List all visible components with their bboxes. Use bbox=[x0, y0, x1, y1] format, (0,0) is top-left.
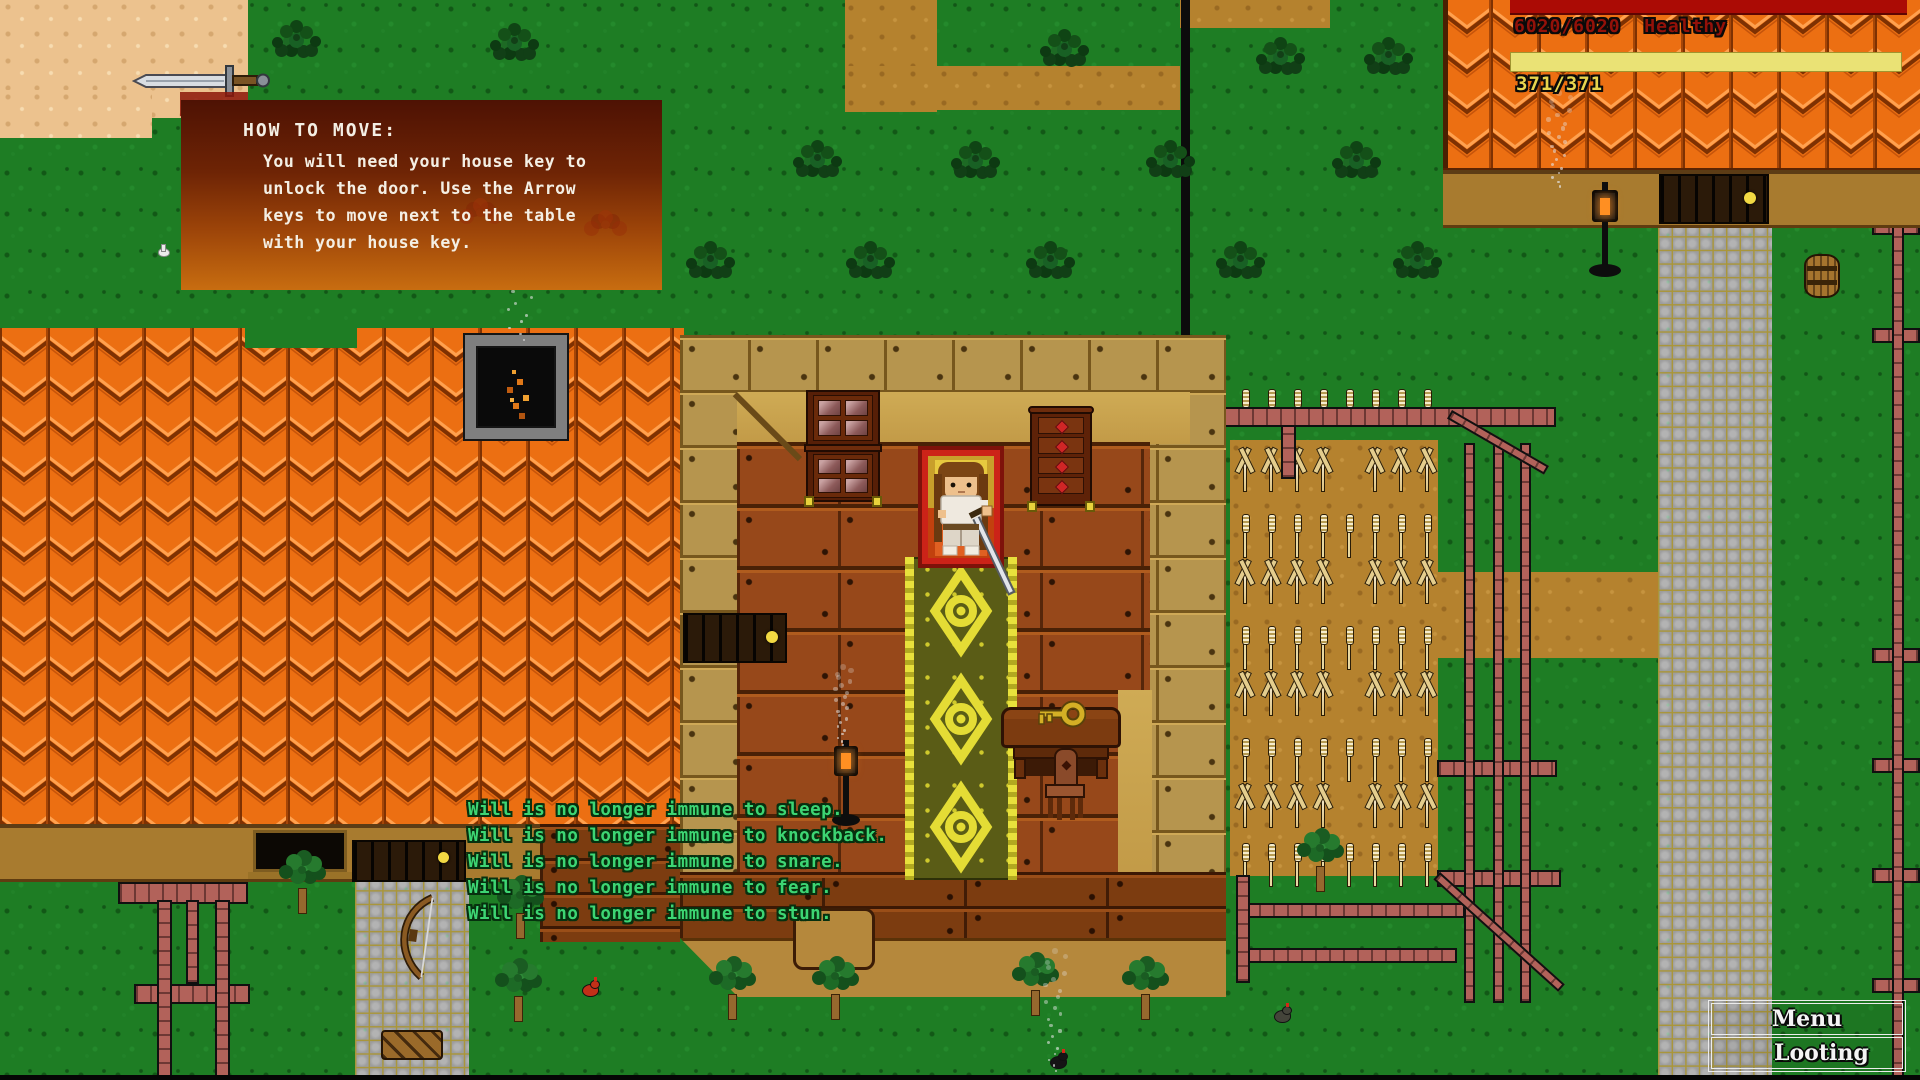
stamina-bar bbox=[1510, 52, 1902, 72]
cabinet-lower bbox=[813, 454, 873, 498]
smoke-particle bbox=[845, 717, 848, 720]
dresser bbox=[1030, 406, 1092, 506]
game-screen: HOW TO MOVE: You will need your house ke… bbox=[0, 0, 1920, 1080]
interior-back-wall bbox=[737, 392, 1190, 444]
grass-bush bbox=[867, 255, 874, 262]
left-house-door[interactable] bbox=[352, 840, 466, 882]
tutorial-title: HOW TO MOVE: bbox=[243, 120, 397, 141]
smoke-particle bbox=[523, 339, 525, 341]
fence-rail-vertical bbox=[1281, 425, 1296, 479]
wheat-stalk bbox=[1373, 628, 1377, 670]
wheat-sprout bbox=[1373, 784, 1377, 828]
tutorial-line: unlock the door. Use the Arrow bbox=[263, 179, 576, 198]
dresser-drawer bbox=[1038, 477, 1084, 494]
tutorial-line: with your house key. bbox=[263, 233, 472, 252]
smoke-particle bbox=[845, 706, 849, 710]
wheat-stalk bbox=[1425, 845, 1429, 887]
stone-path-right bbox=[1658, 224, 1772, 1080]
barrel bbox=[1804, 254, 1840, 298]
grass-bush bbox=[814, 154, 821, 161]
grass-bush bbox=[1385, 51, 1392, 58]
fence-rail-horizontal bbox=[1243, 903, 1465, 918]
health-bar bbox=[1510, 0, 1907, 15]
tutorial-box: HOW TO MOVE: You will need your house ke… bbox=[181, 100, 662, 290]
smoke-particle bbox=[525, 314, 528, 317]
smoke-particle bbox=[1052, 948, 1058, 954]
wheat-sprout bbox=[1269, 784, 1273, 828]
right-house-door-handle bbox=[1744, 192, 1756, 204]
wheat-field-soil bbox=[1230, 440, 1438, 876]
wheat-sprout bbox=[1399, 784, 1403, 828]
chair bbox=[1040, 748, 1090, 824]
wheat-stalk bbox=[1347, 845, 1351, 887]
carpet-tile bbox=[914, 773, 1008, 880]
carpet-edge-left bbox=[905, 557, 914, 880]
rabbit bbox=[158, 248, 170, 257]
tree-foliage bbox=[728, 972, 736, 980]
wheat-stalk bbox=[1295, 628, 1299, 670]
status-message: Will is no longer immune to sleep. bbox=[468, 800, 843, 820]
wheat-sprout bbox=[1399, 448, 1403, 492]
looting-button[interactable]: Looting bbox=[1711, 1037, 1903, 1069]
tree-foliage bbox=[1031, 968, 1039, 976]
cabinet-foot bbox=[804, 496, 814, 507]
stamina-text: 371/371 bbox=[1516, 73, 1603, 95]
wheat-stalk bbox=[1399, 740, 1403, 782]
chicken bbox=[1050, 1056, 1067, 1069]
wheat-stalk bbox=[1347, 628, 1351, 670]
fence-rail-vertical bbox=[215, 900, 230, 1080]
dirt-path-top-right bbox=[1180, 0, 1330, 28]
wheat-sprout bbox=[1321, 784, 1325, 828]
grass-bush bbox=[1061, 43, 1068, 50]
status-message: Will is no longer immune to stun. bbox=[468, 904, 832, 924]
chimney bbox=[465, 335, 567, 439]
chicken bbox=[1274, 1010, 1291, 1023]
wheat-stalk bbox=[1243, 628, 1247, 670]
smoke-particle bbox=[848, 668, 853, 673]
dresser-drawer bbox=[1038, 457, 1084, 474]
smoke-particle bbox=[1557, 181, 1559, 183]
screen-bottom-edge bbox=[0, 1075, 1920, 1080]
grass-bush bbox=[293, 34, 300, 41]
wheat-stalk bbox=[1243, 740, 1247, 782]
wheat-stalk bbox=[1373, 516, 1377, 558]
grass-bush bbox=[511, 37, 518, 44]
health-gap bbox=[1621, 16, 1645, 37]
smoke-particle bbox=[1563, 140, 1567, 144]
smoke-particle bbox=[1049, 1024, 1052, 1027]
sand-patch-lower bbox=[0, 90, 152, 138]
smoke-particle bbox=[508, 327, 510, 329]
carpet-tile bbox=[914, 665, 1008, 772]
wood-planks bbox=[381, 1030, 443, 1060]
grass-bush bbox=[1414, 255, 1421, 262]
health-label: Healthy bbox=[1644, 16, 1727, 37]
wheat-sprout bbox=[1243, 560, 1247, 604]
status-message: Will is no longer immune to knockback. bbox=[468, 826, 887, 846]
wheat-sprout bbox=[1243, 784, 1247, 828]
chicken bbox=[582, 984, 599, 997]
smoke-particle bbox=[1561, 126, 1565, 130]
fence-rail-vertical bbox=[1520, 443, 1531, 1003]
health-text: 6020/6020 Healthy bbox=[1514, 16, 1727, 37]
wheat-sprout bbox=[1425, 784, 1429, 828]
tree-trunk bbox=[1316, 866, 1325, 892]
health-value: 6020/6020 bbox=[1514, 16, 1621, 37]
left-house-door-handle bbox=[438, 852, 449, 863]
wheat-sprout bbox=[1373, 560, 1377, 604]
tutorial-line: You will need your house key to bbox=[263, 152, 586, 171]
wheat-stalk bbox=[1399, 628, 1403, 670]
status-message: Will is no longer immune to fear. bbox=[468, 878, 832, 898]
house-key[interactable] bbox=[1036, 698, 1086, 730]
tree-trunk bbox=[728, 994, 737, 1020]
grass-bush bbox=[1167, 154, 1174, 161]
wheat-sprout bbox=[1269, 448, 1273, 492]
smoke-particle bbox=[1550, 104, 1555, 109]
wheat-sprout bbox=[1243, 672, 1247, 716]
wheat-stalk bbox=[1347, 516, 1351, 558]
tree-trunk bbox=[1031, 990, 1040, 1016]
wheat-stalk bbox=[1295, 740, 1299, 782]
wheat-stalk bbox=[1399, 516, 1403, 558]
fence-rail-horizontal bbox=[134, 984, 250, 1004]
cabinet-foot bbox=[872, 496, 882, 507]
smoke-particle bbox=[841, 702, 845, 706]
tree-trunk bbox=[1141, 994, 1150, 1020]
wheat-sprout bbox=[1425, 672, 1429, 716]
wheat-sprout bbox=[1321, 560, 1325, 604]
smoke-particle bbox=[840, 664, 846, 670]
fence-rail-vertical bbox=[1892, 222, 1904, 1080]
smoke-particle bbox=[1062, 971, 1067, 976]
wheat-stalk bbox=[1373, 740, 1377, 782]
smoke-particle bbox=[1555, 158, 1558, 161]
wheat-sprout bbox=[1425, 448, 1429, 492]
smoke-particle bbox=[1551, 176, 1553, 178]
smoke-particle bbox=[1546, 117, 1551, 122]
smoke-particle bbox=[1568, 95, 1573, 100]
wheat-stalk bbox=[1425, 740, 1429, 782]
lamppost bbox=[1588, 182, 1622, 280]
wheat-sprout bbox=[1295, 560, 1299, 604]
apron-corner-cut bbox=[680, 938, 738, 997]
cabinet-divider bbox=[804, 444, 882, 452]
smoke-particle bbox=[511, 290, 514, 293]
wheat-stalk bbox=[1373, 845, 1377, 887]
wheat-sprout bbox=[1295, 784, 1299, 828]
smoke-particle bbox=[1550, 145, 1554, 149]
smoke-particle bbox=[839, 683, 844, 688]
wheat-stalk bbox=[1269, 628, 1273, 670]
wheat-sprout bbox=[1321, 448, 1325, 492]
wheat-stalk bbox=[1269, 845, 1273, 887]
tutorial-decoration bbox=[601, 220, 610, 229]
wheat-stalk bbox=[1321, 516, 1325, 558]
tutorial-line: keys to move next to the table bbox=[263, 206, 576, 225]
west-door-handle bbox=[766, 631, 778, 643]
wheat-sprout bbox=[1269, 560, 1273, 604]
fence-rail-horizontal bbox=[1208, 407, 1556, 427]
wheat-sprout bbox=[1295, 672, 1299, 716]
tree-foliage bbox=[1141, 972, 1149, 980]
tree-foliage bbox=[514, 974, 522, 982]
wheat-sprout bbox=[1399, 672, 1403, 716]
smoke-particle bbox=[841, 740, 843, 742]
tree-trunk bbox=[514, 996, 523, 1022]
grass-bush bbox=[1353, 155, 1360, 162]
wheat-sprout bbox=[1399, 560, 1403, 604]
wheat-sprout bbox=[1243, 448, 1247, 492]
dresser-foot bbox=[1085, 501, 1095, 512]
post-line bbox=[1181, 0, 1190, 340]
wheat-stalk bbox=[1425, 516, 1429, 558]
dresser-foot bbox=[1027, 501, 1037, 512]
grass-bush bbox=[1237, 255, 1244, 262]
wheat-stalk bbox=[1269, 740, 1273, 782]
wheat-stalk bbox=[1347, 740, 1351, 782]
interior-right-strip bbox=[1118, 690, 1152, 880]
grass-bush bbox=[1047, 255, 1054, 262]
wheat-sprout bbox=[1373, 448, 1377, 492]
smoke-particle bbox=[519, 333, 521, 335]
fence-rail-vertical bbox=[1236, 875, 1250, 983]
smoke-particle bbox=[1563, 154, 1566, 157]
cabinet-upper bbox=[813, 395, 873, 441]
tree-foliage bbox=[831, 972, 839, 980]
grass-bush bbox=[707, 255, 714, 262]
dirt-path-horizontal bbox=[845, 66, 1180, 110]
status-message: Will is no longer immune to snare. bbox=[468, 852, 843, 872]
wheat-stalk bbox=[1399, 845, 1403, 887]
smoke-particle bbox=[1567, 108, 1572, 113]
grass-bush bbox=[1277, 51, 1284, 58]
fence-rail-vertical bbox=[186, 900, 199, 984]
action-buttons: Menu Looting bbox=[1708, 1000, 1906, 1072]
smoke-particle bbox=[1051, 977, 1056, 982]
wheat-sprout bbox=[1269, 672, 1273, 716]
smoke-particle bbox=[1559, 185, 1561, 187]
wheat-stalk bbox=[1243, 516, 1247, 558]
left-house-roof bbox=[0, 328, 684, 828]
wheat-stalk bbox=[1295, 516, 1299, 558]
fence-rail-horizontal bbox=[1243, 948, 1457, 963]
center-house-apron bbox=[680, 938, 1226, 997]
dresser-drawer bbox=[1038, 417, 1084, 434]
fence-rail-vertical bbox=[1464, 443, 1475, 1003]
smoke-particle bbox=[1551, 163, 1554, 166]
cabinet bbox=[806, 390, 880, 502]
smoke-particle bbox=[1059, 1012, 1063, 1016]
wheat-stalk bbox=[1321, 628, 1325, 670]
tree-trunk bbox=[831, 994, 840, 1020]
fence-rail-vertical bbox=[1493, 443, 1504, 1003]
smoke-particle bbox=[1553, 149, 1556, 152]
fence-rail-vertical bbox=[157, 900, 172, 1080]
menu-button[interactable]: Menu bbox=[1711, 1003, 1903, 1035]
wheat-sprout bbox=[1425, 560, 1429, 604]
dresser-drawer bbox=[1038, 437, 1084, 454]
tree-foliage bbox=[298, 866, 306, 874]
player-character[interactable] bbox=[918, 444, 1018, 604]
smoke-particle bbox=[1056, 1047, 1059, 1050]
tree-foliage bbox=[1316, 844, 1324, 852]
wheat-stalk bbox=[1425, 628, 1429, 670]
wheat-stalk bbox=[1269, 516, 1273, 558]
wheat-stalk bbox=[1321, 740, 1325, 782]
tree-trunk bbox=[298, 888, 307, 914]
chimney-sparks bbox=[512, 370, 516, 374]
smoke-particle bbox=[843, 729, 846, 732]
smoke-particle bbox=[1058, 1029, 1061, 1032]
roof-notch bbox=[245, 328, 357, 348]
grass-bush bbox=[972, 155, 979, 162]
wheat-sprout bbox=[1373, 672, 1377, 716]
wheat-sprout bbox=[1321, 672, 1325, 716]
wheat-stalk bbox=[1295, 845, 1299, 887]
dresser-top bbox=[1028, 406, 1094, 414]
